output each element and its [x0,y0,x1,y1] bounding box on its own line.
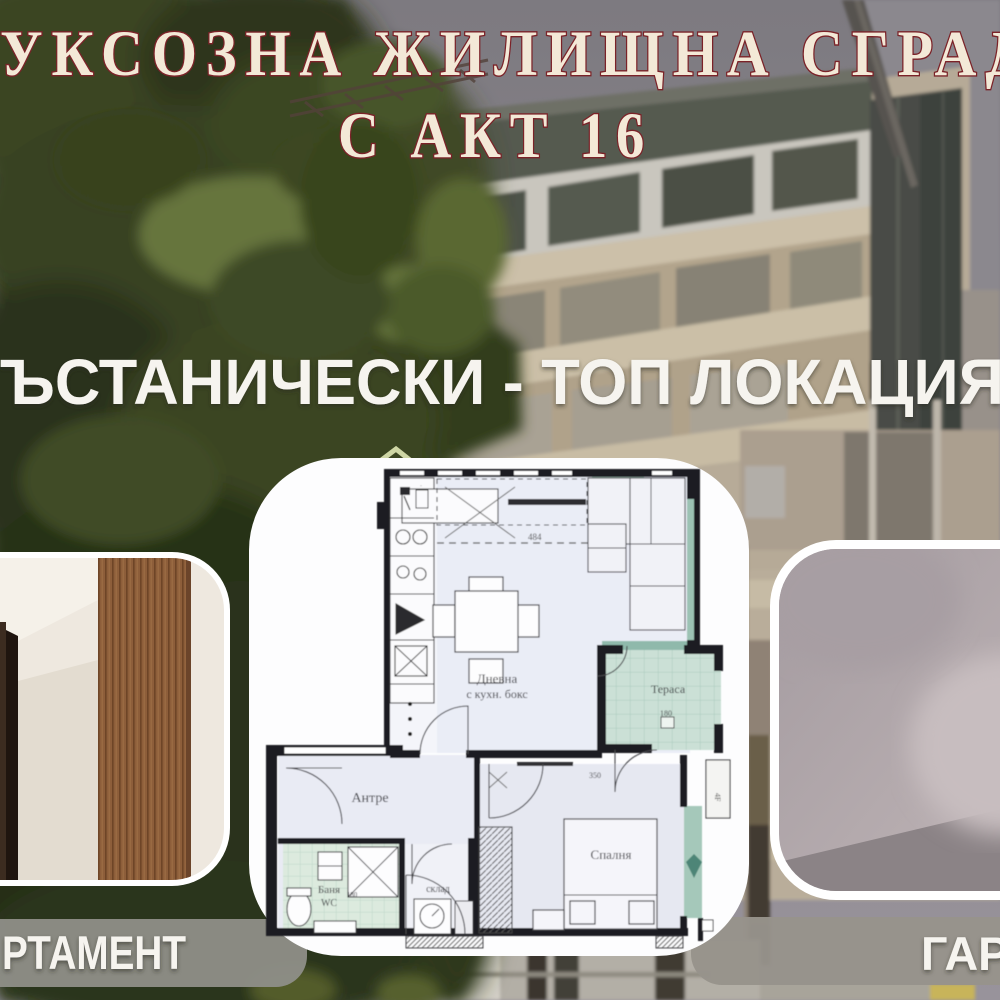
svg-text:ГАРАЖ: ГАРАЖ [921,927,1000,980]
svg-text:с кухн. бокс: с кухн. бокс [466,687,527,701]
svg-text:180: 180 [347,891,358,899]
svg-text:Антре: Антре [351,791,388,806]
svg-text:УКСОЗНА ЖИЛИЩНА СГРАДА: УКСОЗНА ЖИЛИЩНА СГРАДА [0,18,1000,90]
svg-text:4F: 4F [713,793,722,802]
svg-text:Баня: Баня [318,884,340,896]
svg-text:180: 180 [660,709,672,718]
svg-text:С АКТ 16: С АКТ 16 [338,100,653,172]
svg-text:350: 350 [589,771,601,780]
svg-text:Тераса: Тераса [651,682,686,696]
svg-text:484: 484 [528,532,542,542]
svg-text:ЪСТАНИЧЕСКИ - ТОП ЛОКАЦИЯ: ЪСТАНИЧЕСКИ - ТОП ЛОКАЦИЯ [0,346,1000,418]
svg-text:Спалня: Спалня [591,847,632,862]
svg-text:РТАМЕНТ: РТАМЕНТ [2,926,186,979]
svg-text:склад: склад [426,884,450,895]
svg-text:WC: WC [321,898,337,909]
svg-text:Дневна: Дневна [477,671,518,686]
